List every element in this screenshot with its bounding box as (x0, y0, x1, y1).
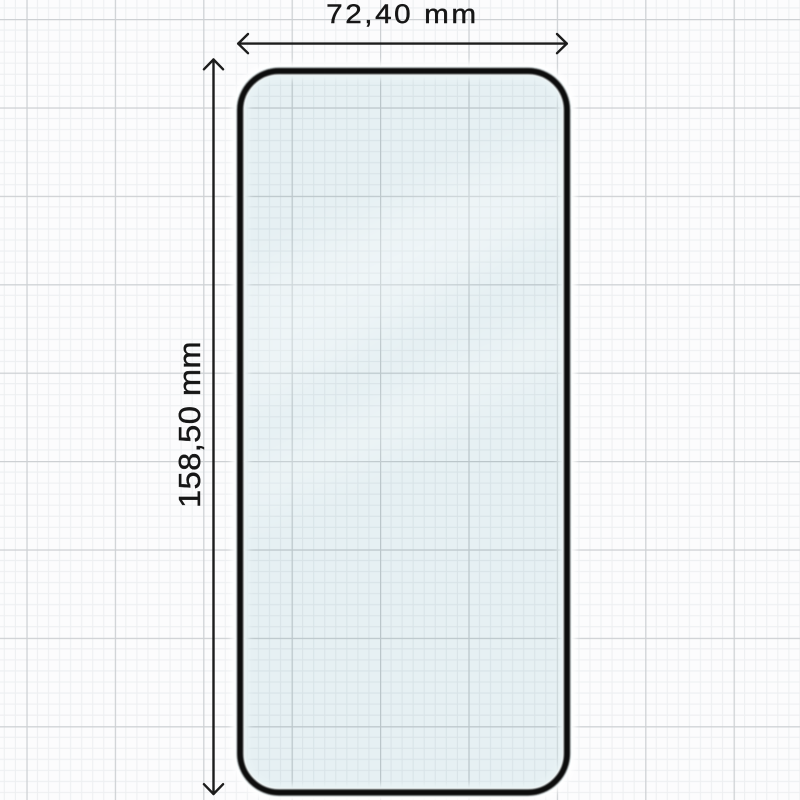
svg-text:72,40 mm: 72,40 mm (326, 0, 479, 29)
svg-text:158,50 mm: 158,50 mm (172, 341, 207, 508)
